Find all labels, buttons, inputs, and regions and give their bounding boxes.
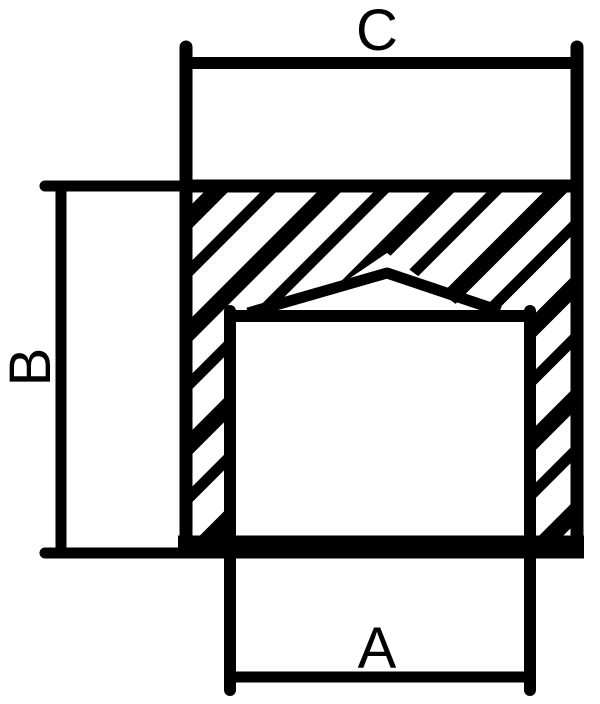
dim-label-a: A [358, 616, 397, 681]
drawing-svg: C B A [0, 0, 600, 704]
dim-label-b: B [0, 348, 63, 387]
section-hatch-area [192, 191, 578, 547]
technical-drawing: C B A [0, 0, 600, 704]
dim-label-c: C [356, 0, 398, 63]
